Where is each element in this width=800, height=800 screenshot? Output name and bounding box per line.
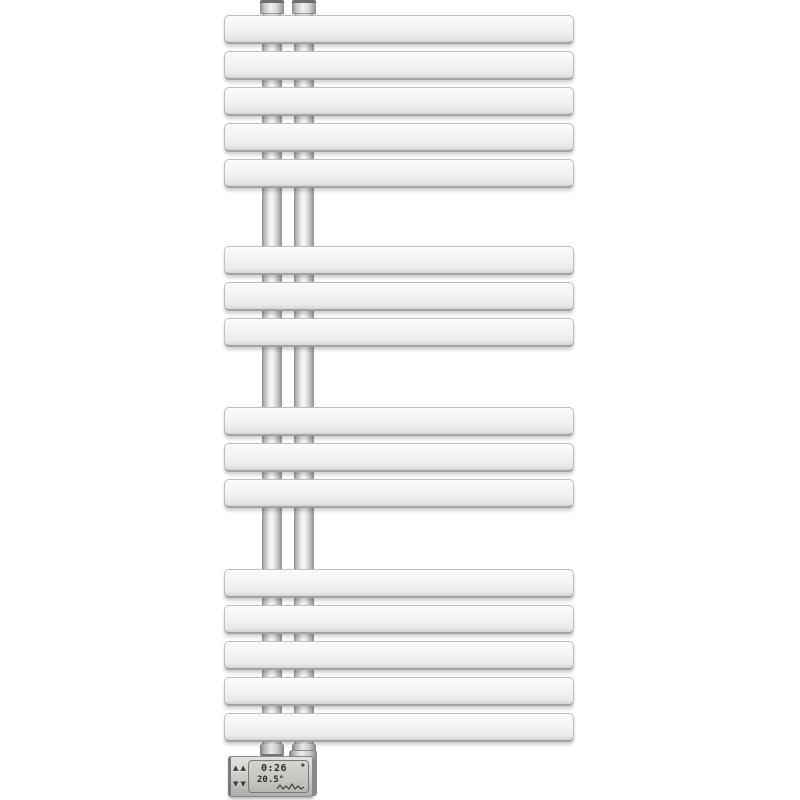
- radiator-bar: [224, 677, 574, 706]
- controller-buttons: ▲ ▲ ▼ ▼: [231, 757, 247, 796]
- display-time: 0:26: [261, 764, 287, 774]
- radiator-bar: [224, 713, 574, 742]
- up-arrow-icon: ▲: [233, 765, 238, 772]
- radiator-bar: [224, 15, 574, 44]
- tube-cap-left: [260, 0, 284, 14]
- radiator-bar: [224, 569, 574, 598]
- radiator-bar: [224, 246, 574, 275]
- thermostat-controller: ▲ ▲ ▼ ▼ ❖ 0:26 20.5°: [228, 756, 313, 797]
- down-arrow-icon: ▼: [241, 781, 246, 788]
- product-photo-towel-radiator: ▲ ▲ ▼ ▼ ❖ 0:26 20.5°: [0, 0, 800, 800]
- down-arrow-icon: ▼: [233, 781, 238, 788]
- radiator-bar: [224, 605, 574, 634]
- schedule-graph-icon: [277, 783, 305, 790]
- radiator-bar: [224, 479, 574, 508]
- radiator-bar: [224, 123, 574, 152]
- status-icon: ❖: [301, 762, 305, 769]
- tube-cap-right: [292, 0, 316, 14]
- radiator-bar: [224, 407, 574, 436]
- radiator-bar: [224, 641, 574, 670]
- radiator-bar: [224, 282, 574, 311]
- radiator-bar: [224, 159, 574, 188]
- lcd-display: ❖ 0:26 20.5°: [248, 760, 309, 793]
- tube-fitting-left: [260, 744, 284, 756]
- radiator-bar: [224, 51, 574, 80]
- radiator-bar: [224, 318, 574, 347]
- radiator-bar: [224, 87, 574, 116]
- up-arrow-icon: ▲: [241, 765, 246, 772]
- radiator-bar: [224, 443, 574, 472]
